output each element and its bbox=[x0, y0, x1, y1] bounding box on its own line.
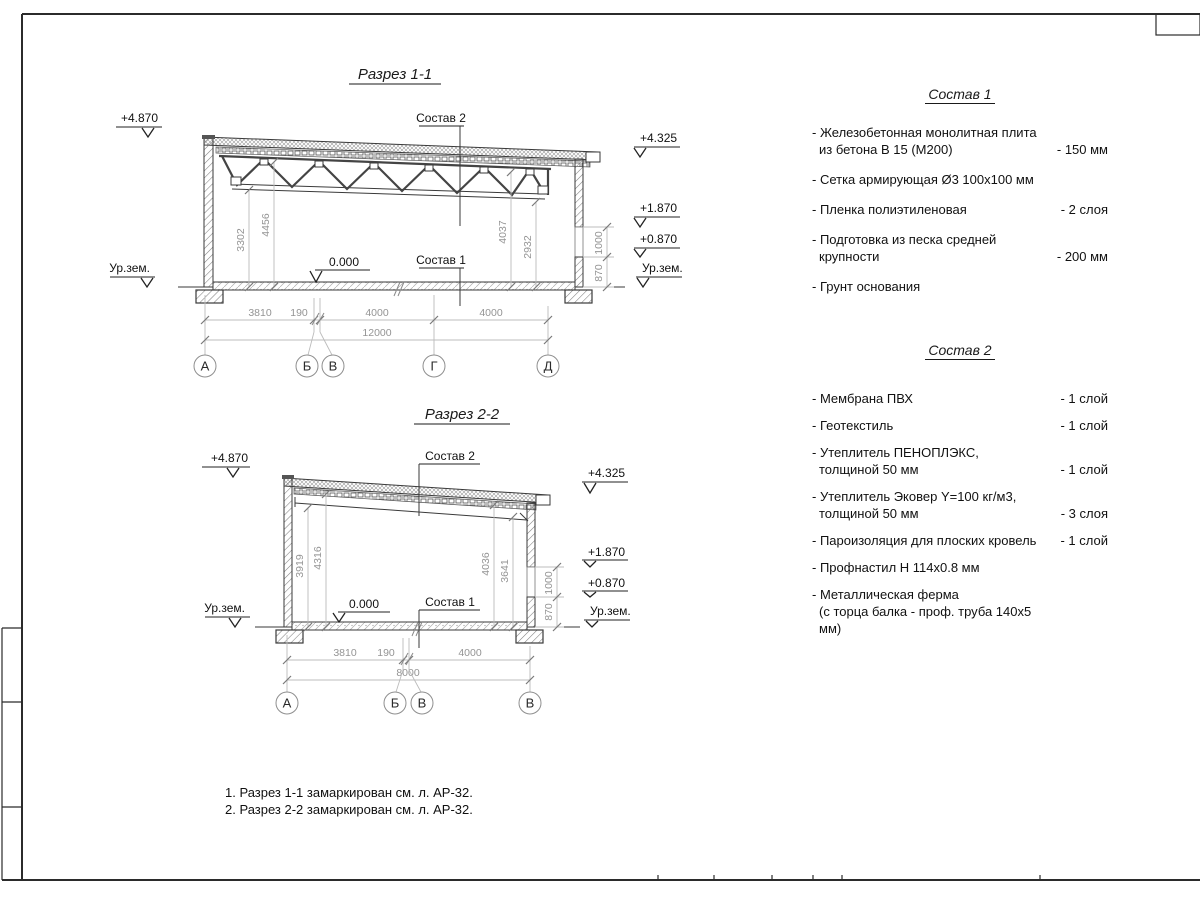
item-line: - Сетка армирующая Ø3 100х100 мм bbox=[812, 171, 1034, 188]
sostav-2-list: Состав 2 - Мембрана ПВХ - 1 слой - Геоте… bbox=[812, 342, 1108, 647]
s1-structure bbox=[178, 135, 625, 303]
s1-vdim-4456: 4456 bbox=[260, 213, 272, 237]
s1-vdim-3302: 3302 bbox=[235, 228, 247, 252]
s2-zero-mark: 0.000 bbox=[349, 597, 379, 611]
list-item: - Пленка полиэтиленовая - 2 слоя bbox=[812, 201, 1108, 218]
s1-axis-v: В bbox=[329, 359, 338, 374]
list-item: - Мембрана ПВХ - 1 слой bbox=[812, 390, 1108, 407]
item-value: - 200 мм bbox=[1057, 248, 1108, 265]
s2-vdim-4316: 4316 bbox=[312, 546, 324, 570]
s2-axis-b: Б bbox=[391, 696, 400, 711]
s1-vdim-1000: 1000 bbox=[593, 231, 605, 255]
s1-vdim-4037: 4037 bbox=[497, 220, 509, 244]
s2-axis-v2: В bbox=[526, 696, 535, 711]
item-line: - Пароизоляция для плоских кровель bbox=[812, 532, 1036, 549]
s1-vdim-870: 870 bbox=[593, 264, 605, 282]
s1-grid-axes: А Б В Г Д bbox=[194, 355, 559, 377]
s2-hdim-3810: 3810 bbox=[333, 647, 357, 659]
s2-sostav1-label: Состав 1 bbox=[425, 595, 475, 609]
item-value: - 2 слоя bbox=[1061, 201, 1108, 218]
item-line: крупности bbox=[812, 248, 996, 265]
s1-axis-a: А bbox=[201, 359, 210, 374]
s1-elev-right-087: +0.870 bbox=[640, 232, 677, 246]
item-line: - Пленка полиэтиленовая bbox=[812, 201, 967, 218]
s2-vdim-1000: 1000 bbox=[543, 571, 555, 595]
sostav-1-items: - Железобетонная монолитная плита из бет… bbox=[812, 124, 1108, 295]
list-item: - Металлическая ферма (с торца балка - п… bbox=[812, 586, 1108, 637]
s1-hdim-4000a: 4000 bbox=[365, 307, 389, 319]
list-item: - Железобетонная монолитная плита из бет… bbox=[812, 124, 1108, 158]
list-item: - Грунт основания bbox=[812, 278, 1108, 295]
s2-sostav2-label: Состав 2 bbox=[425, 449, 475, 463]
s1-elev-left-top: +4.870 bbox=[121, 111, 158, 125]
list-item: - Геотекстиль - 1 слой bbox=[812, 417, 1108, 434]
section-2-title: Разрез 2-2 bbox=[425, 406, 500, 423]
s2-labels: Состав 2 Состав 1 0.000 bbox=[333, 449, 480, 648]
s2-right-wall bbox=[527, 503, 535, 627]
left-margin-cells bbox=[2, 628, 22, 880]
item-line: толщиной 50 мм bbox=[812, 461, 979, 478]
s1-hdim-190: 190 bbox=[290, 307, 308, 319]
s1-sostav1-label: Состав 1 bbox=[416, 253, 466, 267]
item-line: - Мембрана ПВХ bbox=[812, 390, 913, 407]
s1-elev-right-187: +1.870 bbox=[640, 201, 677, 215]
item-value: - 1 слой bbox=[1060, 532, 1108, 549]
s2-elev-right-top: +4.325 bbox=[588, 466, 625, 480]
section-2-2: Разрез 2-2 bbox=[202, 406, 631, 714]
item-value: - 3 слоя bbox=[1061, 505, 1108, 522]
s1-zero-mark: 0.000 bbox=[329, 255, 359, 269]
s2-elev-right-ground: Ур.зем. bbox=[590, 604, 631, 618]
list-item: - Пароизоляция для плоских кровель - 1 с… bbox=[812, 532, 1108, 549]
s1-axis-d: Д bbox=[544, 359, 553, 374]
list-item: - Подготовка из песка средней крупности … bbox=[812, 231, 1108, 265]
foundation-right bbox=[565, 290, 592, 303]
item-line: толщиной 50 мм bbox=[812, 505, 1016, 522]
section-1-1: Разрез 1-1 bbox=[109, 66, 682, 377]
s1-elev-right-top: +4.325 bbox=[640, 131, 677, 145]
s1-hdim-total: 12000 bbox=[362, 327, 391, 339]
sostav-2-items: - Мембрана ПВХ - 1 слой - Геотекстиль - … bbox=[812, 390, 1108, 637]
foundation-left bbox=[196, 290, 223, 303]
sostav-2-title: Состав 2 bbox=[812, 342, 1108, 358]
notes: 1. Разрез 1-1 замаркирован см. л. АР-32.… bbox=[225, 784, 473, 818]
item-line: - Металлическая ферма bbox=[812, 586, 1040, 603]
s2-vdim-870: 870 bbox=[543, 603, 555, 621]
sheet: Разрез 1-1 bbox=[0, 0, 1200, 900]
s1-vdim-2932: 2932 bbox=[522, 235, 534, 259]
s1-hdim-4000b: 4000 bbox=[479, 307, 503, 319]
s1-dimensions: 3302 4456 4037 2932 1000 870 bbox=[201, 158, 614, 355]
s2-hdim-190: 190 bbox=[377, 647, 395, 659]
s1-elev-right-ground: Ур.зем. bbox=[642, 261, 683, 275]
item-line: - Утеплитель Эковер Y=100 кг/м3, bbox=[812, 488, 1016, 505]
item-value: - 1 слой bbox=[1060, 417, 1108, 434]
s1-elevation-marks: +4.870 Ур.зем. +4.325 +1.870 +0.870 Ур.з… bbox=[109, 111, 682, 287]
roof-end-plate bbox=[586, 152, 600, 162]
s2-axis-v1: В bbox=[418, 696, 427, 711]
item-line: (с торца балка - проф. труба 140х5 мм) bbox=[812, 603, 1040, 637]
item-line: - Железобетонная монолитная плита bbox=[812, 124, 1037, 141]
note-1: 1. Разрез 1-1 замаркирован см. л. АР-32. bbox=[225, 784, 473, 801]
format-cell bbox=[1156, 14, 1200, 35]
left-column bbox=[204, 137, 213, 287]
list-item: - Профнастил Н 114х0.8 мм bbox=[812, 559, 1108, 576]
s2-elev-right-187: +1.870 bbox=[588, 545, 625, 559]
s2-elev-right-087: +0.870 bbox=[588, 576, 625, 590]
s2-hdim-4000: 4000 bbox=[458, 647, 482, 659]
sostav-1-title: Состав 1 bbox=[812, 86, 1108, 102]
floor-slab bbox=[213, 282, 575, 290]
list-item: - Утеплитель ПЕНОПЛЭКС, толщиной 50 мм -… bbox=[812, 444, 1108, 478]
s1-right-wall bbox=[575, 159, 583, 287]
item-line: - Профнастил Н 114х0.8 мм bbox=[812, 559, 980, 576]
s1-axis-g: Г bbox=[430, 359, 437, 374]
s1-axis-b: Б bbox=[303, 359, 312, 374]
item-value: - 150 мм bbox=[1057, 141, 1108, 158]
left-column bbox=[284, 477, 292, 627]
item-line: - Подготовка из песка средней bbox=[812, 231, 996, 248]
sostav-1-list: Состав 1 - Железобетонная монолитная пли… bbox=[812, 86, 1108, 308]
sostav-2-title-text: Состав 2 bbox=[925, 342, 994, 360]
s2-grid-axes: А Б В В bbox=[276, 692, 541, 714]
s2-elev-left-top: +4.870 bbox=[211, 451, 248, 465]
item-value: - 1 слой bbox=[1060, 461, 1108, 478]
s1-elev-left-ground: Ур.зем. bbox=[109, 261, 150, 275]
foundation-left bbox=[276, 630, 303, 643]
s2-axis-a: А bbox=[283, 696, 292, 711]
s2-hdim-total: 8000 bbox=[396, 667, 420, 679]
s1-sostav2-label: Состав 2 bbox=[416, 111, 466, 125]
s2-vdim-4036: 4036 bbox=[480, 552, 492, 576]
list-item: - Сетка армирующая Ø3 100х100 мм bbox=[812, 171, 1108, 188]
s1-hdim-3810: 3810 bbox=[248, 307, 272, 319]
sostav-1-title-text: Состав 1 bbox=[925, 86, 994, 104]
foundation-right bbox=[516, 630, 543, 643]
s2-dimensions: 3919 4316 4036 3641 1000 870 bbox=[283, 490, 564, 692]
item-line: - Утеплитель ПЕНОПЛЭКС, bbox=[812, 444, 979, 461]
note-2: 2. Разрез 2-2 замаркирован см. л. АР-32. bbox=[225, 801, 473, 818]
s2-vdim-3919: 3919 bbox=[294, 554, 306, 578]
list-item: - Утеплитель Эковер Y=100 кг/м3, толщино… bbox=[812, 488, 1108, 522]
s2-elevation-marks: +4.870 Ур.зем. +4.325 +1.870 +0.870 Ур.з… bbox=[202, 451, 631, 627]
item-line: из бетона В 15 (М200) bbox=[812, 141, 1037, 158]
section-1-title: Разрез 1-1 bbox=[358, 66, 432, 83]
s1-labels: Состав 2 Состав 1 0.000 bbox=[310, 111, 466, 306]
roof-end-plate bbox=[536, 495, 550, 505]
s2-elev-left-ground: Ур.зем. bbox=[204, 601, 245, 615]
item-line: - Грунт основания bbox=[812, 278, 920, 295]
item-value: - 1 слой bbox=[1060, 390, 1108, 407]
item-line: - Геотекстиль bbox=[812, 417, 893, 434]
s2-vdim-3641: 3641 bbox=[499, 559, 511, 583]
